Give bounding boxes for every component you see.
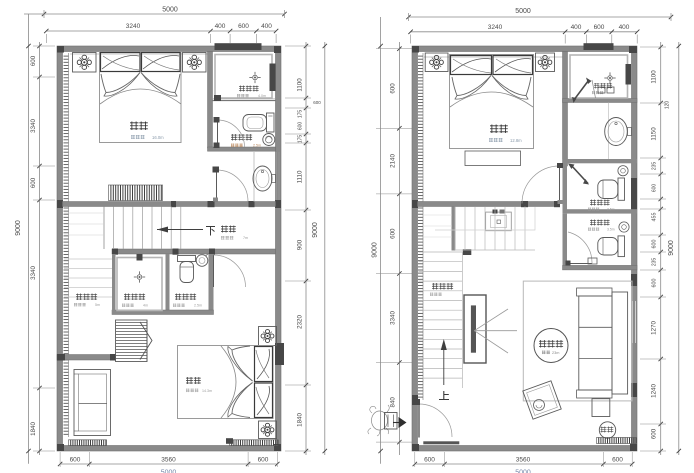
- svg-text:9000: 9000: [312, 222, 319, 238]
- svg-text:1100: 1100: [297, 78, 304, 92]
- svg-text:1840: 1840: [30, 422, 37, 436]
- svg-text:900: 900: [297, 239, 304, 250]
- svg-text:600: 600: [424, 457, 435, 464]
- svg-text:5000: 5000: [515, 470, 531, 473]
- svg-text:455: 455: [652, 213, 658, 222]
- svg-text:23m: 23m: [552, 351, 559, 355]
- svg-text:120: 120: [665, 101, 671, 110]
- svg-text:400: 400: [261, 23, 272, 30]
- svg-text:1100: 1100: [651, 70, 658, 84]
- svg-text:600: 600: [313, 100, 321, 105]
- svg-text:12.8m: 12.8m: [510, 138, 522, 143]
- svg-text:3.5m: 3.5m: [607, 227, 615, 231]
- svg-text:9000: 9000: [668, 240, 675, 256]
- svg-text:1840: 1840: [297, 413, 304, 427]
- svg-text:600: 600: [652, 184, 658, 193]
- svg-text:600: 600: [651, 428, 658, 439]
- svg-text:9000: 9000: [15, 220, 22, 236]
- svg-text:600: 600: [298, 122, 304, 131]
- svg-text:400: 400: [571, 24, 582, 31]
- svg-text:3.5m: 3.5m: [607, 207, 615, 211]
- svg-text:3560: 3560: [161, 457, 176, 464]
- svg-text:2140: 2140: [390, 154, 397, 168]
- svg-text:5000: 5000: [162, 7, 178, 14]
- svg-text:600: 600: [390, 228, 397, 239]
- svg-text:2.5m: 2.5m: [194, 304, 202, 308]
- svg-text:9000: 9000: [372, 242, 379, 258]
- svg-text:400: 400: [619, 24, 630, 31]
- svg-text:235: 235: [652, 162, 658, 171]
- svg-text:600: 600: [30, 177, 37, 188]
- svg-text:16.0m: 16.0m: [152, 135, 164, 140]
- svg-text:1150: 1150: [651, 127, 658, 141]
- svg-text:2320: 2320: [297, 315, 304, 329]
- svg-text:600: 600: [594, 24, 605, 31]
- svg-text:3340: 3340: [30, 266, 37, 280]
- svg-text:3340: 3340: [30, 119, 37, 133]
- svg-text:3240: 3240: [488, 24, 503, 31]
- svg-text:5000: 5000: [161, 470, 177, 473]
- svg-text:600: 600: [238, 23, 249, 30]
- svg-text:2.5m: 2.5m: [253, 144, 261, 148]
- svg-text:235: 235: [652, 258, 658, 267]
- svg-text:3240: 3240: [126, 23, 141, 30]
- svg-text:3340: 3340: [390, 311, 397, 325]
- svg-text:3560: 3560: [516, 457, 531, 464]
- svg-text:600: 600: [258, 457, 269, 464]
- svg-text:600: 600: [612, 457, 623, 464]
- svg-text:600: 600: [30, 55, 37, 66]
- svg-text:400: 400: [215, 23, 226, 30]
- svg-text:840: 840: [390, 397, 397, 408]
- svg-text:600: 600: [70, 457, 81, 464]
- svg-text:1110: 1110: [297, 170, 304, 183]
- svg-text:175: 175: [298, 110, 304, 119]
- svg-text:600: 600: [390, 83, 397, 94]
- svg-text:600: 600: [652, 279, 658, 288]
- svg-text:600: 600: [652, 240, 658, 249]
- svg-text:1240: 1240: [651, 384, 658, 398]
- svg-text:7m: 7m: [243, 236, 248, 240]
- svg-text:175: 175: [298, 135, 304, 144]
- svg-text:14.3m: 14.3m: [202, 389, 212, 393]
- svg-text:4m: 4m: [143, 304, 148, 308]
- svg-text:5000: 5000: [515, 8, 531, 15]
- svg-text:1270: 1270: [651, 321, 658, 335]
- svg-text:5m: 5m: [95, 303, 100, 307]
- svg-text:4.0m: 4.0m: [258, 94, 266, 98]
